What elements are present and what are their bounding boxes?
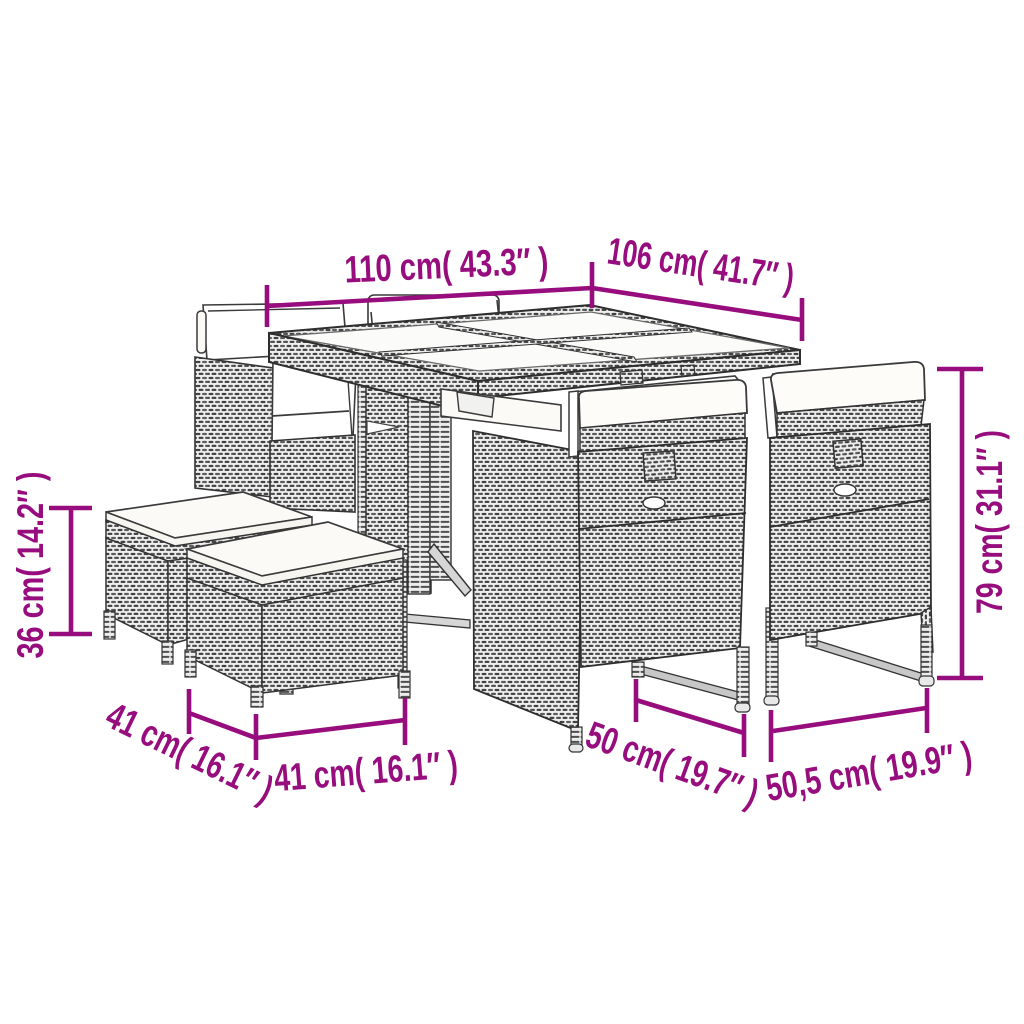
svg-text:36 cm( 14.2″ ): 36 cm( 14.2″ ) (10, 472, 51, 659)
svg-text:79 cm( 31.1″ ): 79 cm( 31.1″ ) (969, 430, 1010, 614)
